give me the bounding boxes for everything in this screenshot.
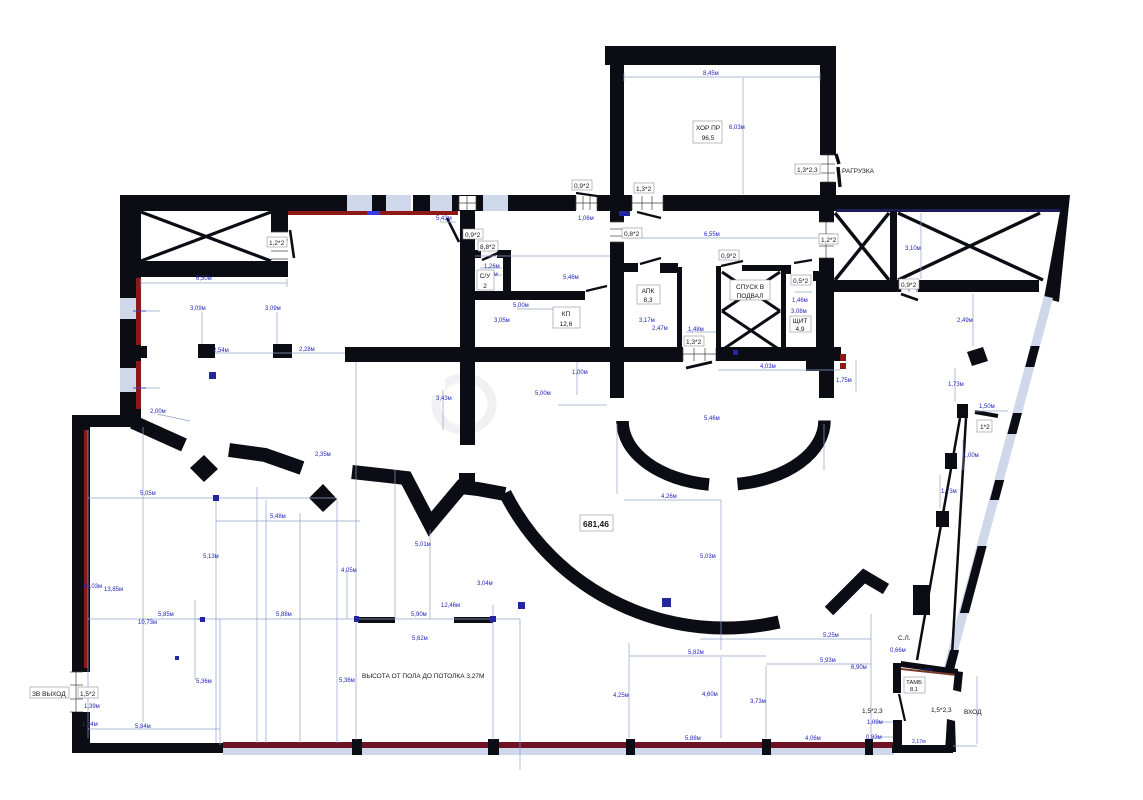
svg-text:1,2*2: 1,2*2: [269, 240, 285, 247]
svg-text:2,00м: 2,00м: [150, 409, 166, 415]
svg-text:0,66м: 0,66м: [890, 648, 906, 654]
svg-text:5,13м: 5,13м: [203, 554, 219, 560]
svg-text:3,08м: 3,08м: [791, 309, 807, 315]
svg-text:1,3*2: 1,3*2: [636, 186, 652, 193]
svg-text:2,47м: 2,47м: [652, 326, 668, 332]
svg-text:5,90м: 5,90м: [411, 612, 427, 618]
svg-text:4,06м: 4,06м: [805, 736, 821, 742]
svg-text:АПК: АПК: [642, 288, 655, 295]
svg-text:5,00м: 5,00м: [535, 391, 551, 397]
svg-text:0,8*2: 0,8*2: [624, 231, 640, 238]
svg-text:5,00м: 5,00м: [513, 303, 529, 309]
svg-text:С/У: С/У: [480, 273, 492, 280]
svg-text:ВЫСОТА ОТ ПОЛА ДО ПОТОЛКА 3,27: ВЫСОТА ОТ ПОЛА ДО ПОТОЛКА 3,27М: [362, 673, 484, 680]
svg-text:16,03м: 16,03м: [83, 584, 102, 590]
svg-text:1*2: 1*2: [980, 424, 990, 431]
svg-text:5,84м: 5,84м: [135, 724, 151, 730]
svg-text:1,48м: 1,48м: [688, 327, 704, 333]
svg-text:КП: КП: [562, 311, 571, 318]
svg-text:5,82м: 5,82м: [688, 650, 704, 656]
svg-text:0,9*2: 0,9*2: [574, 183, 590, 190]
svg-text:3,10м: 3,10м: [905, 246, 921, 252]
svg-text:4,25м: 4,25м: [613, 693, 629, 699]
svg-text:5,03м: 5,03м: [700, 554, 716, 560]
svg-text:0,5*2: 0,5*2: [793, 278, 809, 285]
svg-text:1,5*2,3: 1,5*2,3: [931, 707, 952, 714]
svg-text:2,17м: 2,17м: [912, 739, 926, 745]
svg-text:13,85м: 13,85м: [104, 587, 123, 593]
svg-text:5,48м: 5,48м: [270, 514, 286, 520]
svg-text:ХОР ПР: ХОР ПР: [696, 125, 720, 132]
svg-text:5,85м: 5,85м: [158, 612, 174, 618]
svg-text:1,04м: 1,04м: [82, 722, 98, 728]
svg-text:2,10м: 2,10м: [920, 667, 933, 673]
svg-text:96,5: 96,5: [702, 135, 715, 142]
svg-text:1,06м: 1,06м: [578, 216, 594, 222]
svg-text:0,9*2: 0,9*2: [465, 232, 481, 239]
svg-text:5,43м: 5,43м: [436, 216, 452, 222]
svg-text:4,60м: 4,60м: [702, 692, 718, 698]
svg-text:3,09м: 3,09м: [265, 306, 281, 312]
svg-text:С.Л.: С.Л.: [898, 635, 911, 642]
svg-text:РАГРУЗКА: РАГРУЗКА: [842, 168, 875, 175]
svg-text:1,09м: 1,09м: [867, 720, 883, 726]
svg-text:1,00м: 1,00м: [572, 370, 588, 376]
svg-text:ПОДВАЛ: ПОДВАЛ: [737, 293, 764, 300]
svg-text:1,3*2: 1,3*2: [686, 339, 702, 346]
svg-text:8,1: 8,1: [910, 687, 918, 693]
svg-text:1,73м: 1,73м: [948, 382, 964, 388]
svg-text:12,6: 12,6: [560, 321, 573, 328]
svg-text:5,46м: 5,46м: [563, 275, 579, 281]
svg-text:0,83м: 0,83м: [866, 735, 882, 741]
svg-text:8,3: 8,3: [643, 297, 652, 304]
svg-text:5,88м: 5,88м: [276, 612, 292, 618]
svg-text:4,03м: 4,03м: [760, 364, 776, 370]
svg-text:1,00м: 1,00м: [963, 453, 979, 459]
svg-text:5,01м: 5,01м: [415, 542, 431, 548]
svg-text:10,73м: 10,73м: [138, 620, 157, 626]
svg-text:8,8*2: 8,8*2: [480, 244, 496, 251]
svg-text:1,5*2: 1,5*2: [80, 691, 96, 698]
svg-text:8,45м: 8,45м: [703, 71, 719, 77]
svg-text:ТАМБ: ТАМБ: [906, 680, 922, 686]
svg-text:3,09м: 3,09м: [190, 306, 206, 312]
svg-text:6,03м: 6,03м: [729, 125, 745, 131]
svg-text:6,50м: 6,50м: [196, 276, 212, 282]
svg-text:5,62м: 5,62м: [412, 636, 428, 642]
svg-text:1,50м: 1,50м: [979, 404, 995, 410]
svg-text:4,9: 4,9: [795, 326, 804, 333]
svg-text:5,46м: 5,46м: [704, 416, 720, 422]
svg-text:5,88м: 5,88м: [685, 736, 701, 742]
svg-text:5,93м: 5,93м: [820, 658, 836, 664]
svg-text:2,35м: 2,35м: [315, 452, 331, 458]
svg-text:3,05м: 3,05м: [494, 318, 510, 324]
svg-text:3,43м: 3,43м: [436, 396, 452, 402]
svg-text:1,3*2,3: 1,3*2,3: [797, 167, 818, 174]
svg-text:1,39м: 1,39м: [84, 704, 100, 710]
svg-text:ЩИТ: ЩИТ: [793, 318, 808, 325]
svg-text:3,04м: 3,04м: [477, 581, 493, 587]
svg-text:1,2*2: 1,2*2: [821, 237, 837, 244]
svg-text:5,05м: 5,05м: [140, 491, 156, 497]
svg-text:5,36м: 5,36м: [196, 679, 212, 685]
svg-text:СПУСК В: СПУСК В: [736, 284, 764, 291]
svg-text:5,25м: 5,25м: [823, 633, 839, 639]
svg-text:2,54м: 2,54м: [213, 348, 229, 354]
svg-text:4,05м: 4,05м: [341, 568, 357, 574]
svg-text:0,9*2: 0,9*2: [901, 282, 917, 289]
svg-text:ВХОД: ВХОД: [964, 709, 982, 716]
svg-text:2,49м: 2,49м: [957, 318, 973, 324]
svg-text:3,17м: 3,17м: [639, 318, 655, 324]
svg-text:1,75м: 1,75м: [836, 378, 852, 384]
svg-text:2: 2: [483, 283, 487, 290]
svg-text:6,90м: 6,90м: [851, 665, 867, 671]
svg-text:1,26м: 1,26м: [484, 264, 500, 270]
svg-text:6,55м: 6,55м: [704, 232, 720, 238]
svg-text:12,46м: 12,46м: [441, 603, 460, 609]
svg-text:1,73м: 1,73м: [941, 489, 957, 495]
svg-text:681,46: 681,46: [583, 519, 609, 529]
svg-text:4,26м: 4,26м: [661, 494, 677, 500]
svg-text:5,36м: 5,36м: [339, 678, 355, 684]
svg-text:1,5*2,3: 1,5*2,3: [862, 708, 883, 715]
svg-text:0,9*2: 0,9*2: [721, 253, 737, 260]
svg-text:2,28м: 2,28м: [299, 347, 315, 353]
svg-text:1,46м: 1,46м: [792, 298, 808, 304]
svg-text:3,73м: 3,73м: [750, 699, 766, 705]
svg-text:ЗВ ВЫХОД: ЗВ ВЫХОД: [32, 691, 66, 698]
